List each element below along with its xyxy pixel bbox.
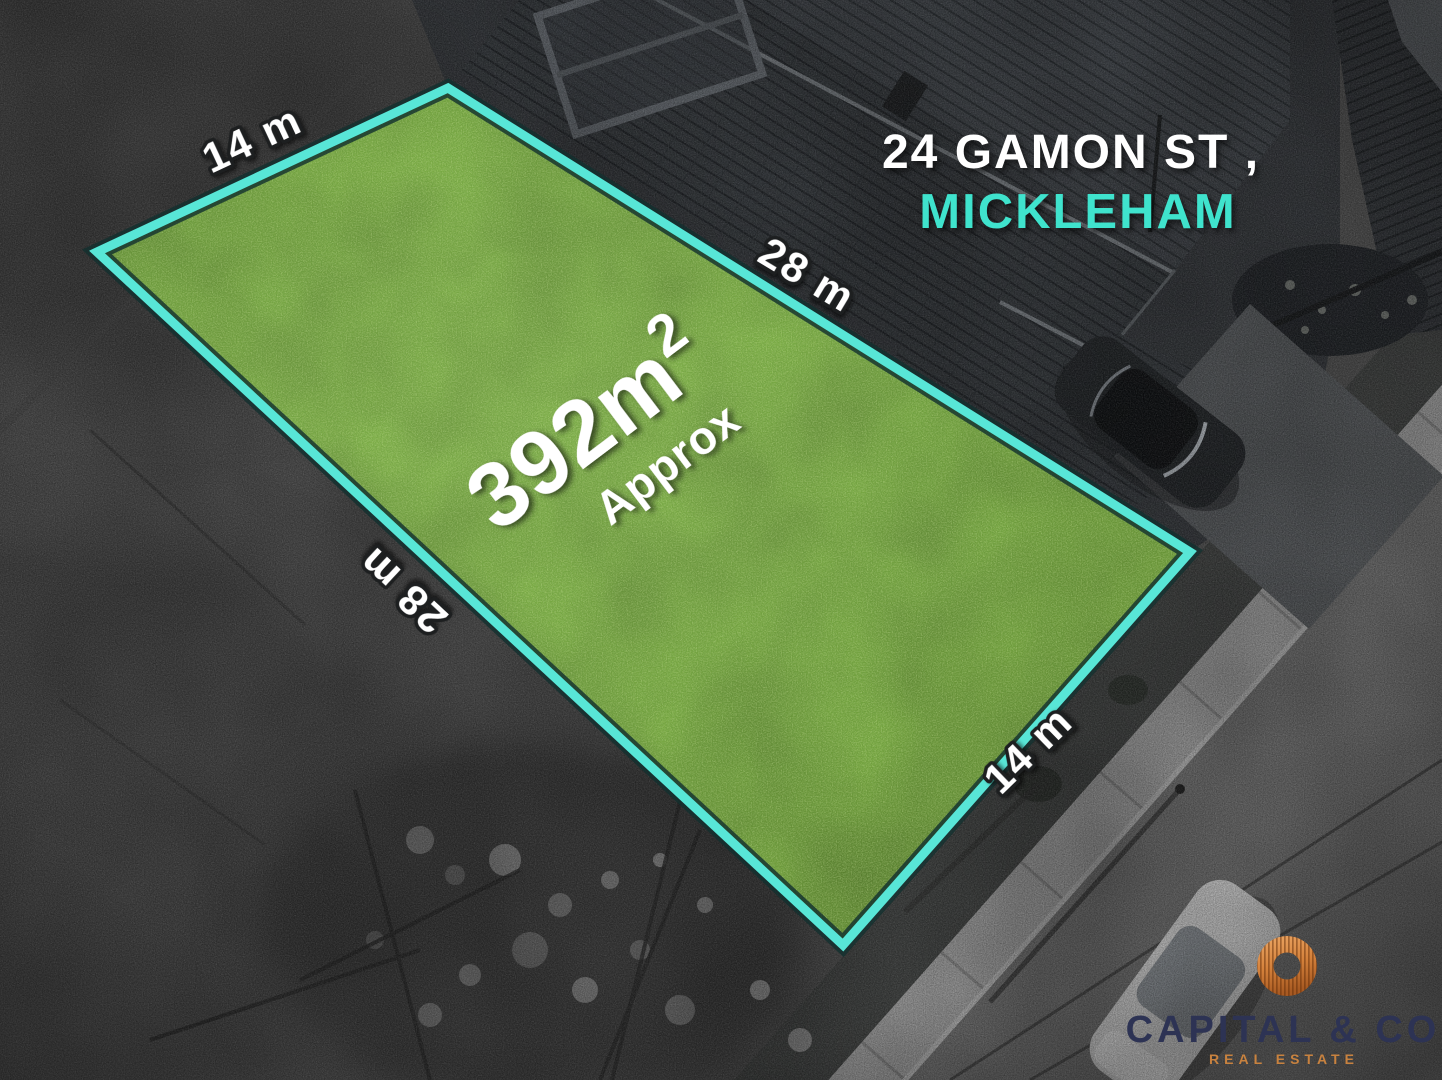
listing-image: 14 m 28 m 28 m 14 m 392m2 Approx 24 GAMO… — [0, 0, 1442, 1080]
aerial-photo: 14 m 28 m 28 m 14 m 392m2 Approx 24 GAMO… — [0, 0, 1442, 1080]
address-street: 24 GAMON ST , — [882, 126, 1260, 179]
agency-tagline: REAL ESTATE — [1209, 1051, 1359, 1067]
address-suburb: MICKLEHAM — [919, 185, 1236, 239]
agency-name: CAPITAL & CO — [1126, 1009, 1441, 1051]
ring-icon — [1255, 934, 1319, 998]
